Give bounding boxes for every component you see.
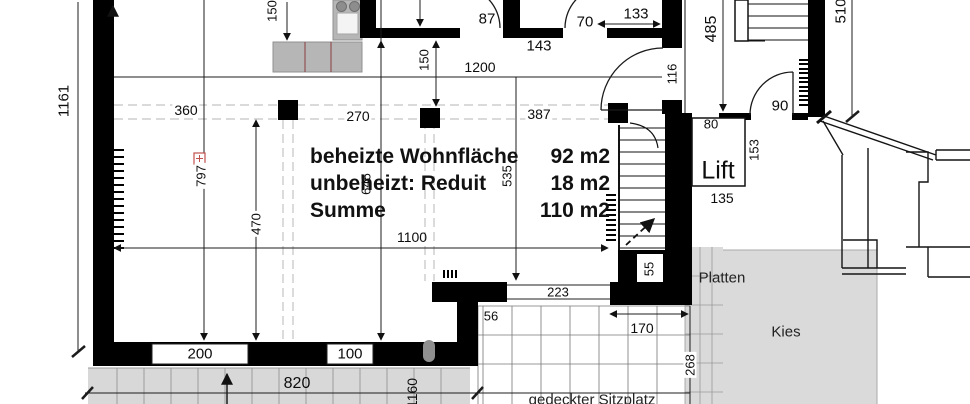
dim-bay-270: 270 <box>344 109 371 123</box>
dim-stair-55: 55 <box>643 262 656 276</box>
summary-row: beheizte Wohnfläche 92 m2 <box>310 143 610 170</box>
dim-corridor-485: 485 <box>704 16 720 43</box>
dim-door-90: 90 <box>772 99 789 114</box>
dim-kitchen-150: 150 <box>266 0 279 22</box>
dim-door-87: 87 <box>479 12 496 27</box>
dim-opening-116: 116 <box>666 62 679 87</box>
dim-terrace-820: 820 <box>284 376 311 392</box>
dim-lift-135: 135 <box>710 191 733 205</box>
column <box>278 100 298 120</box>
floor-plan: 1161 150 150 1200 87 143 70 133 485 510 … <box>0 0 970 404</box>
dim-offset-56: 56 <box>484 310 498 323</box>
dim-right-510: 510 <box>834 0 849 24</box>
dim-terrace-1160: 1160 <box>405 378 419 404</box>
summary-value: 92 m2 <box>550 143 610 170</box>
area-label-kies: Kies <box>771 324 800 341</box>
terrace-column <box>423 340 435 362</box>
dim-total-height: 1161 <box>57 85 72 117</box>
burner-icon <box>337 2 347 12</box>
kitchen-counter <box>273 42 362 72</box>
dim-lift-153: 153 <box>748 139 761 161</box>
dim-line-797: 797 <box>195 163 208 189</box>
dim-window-223: 223 <box>547 286 569 299</box>
burner-icon <box>350 2 360 12</box>
staircase <box>619 123 665 250</box>
sitzplatz-grid <box>478 306 690 404</box>
summary-value: 110 m2 <box>540 197 610 224</box>
dim-top-133: 133 <box>623 7 648 22</box>
dim-grid-150: 150 <box>418 49 431 71</box>
room-label-lift: Lift <box>701 157 734 186</box>
dim-wall-143: 143 <box>526 39 551 54</box>
dim-terrace-268: 268 <box>684 352 697 378</box>
summary-value: 18 m2 <box>550 170 610 197</box>
dim-room-470: 470 <box>250 211 263 237</box>
area-summary: beheizte Wohnfläche 92 m2 unbeheizt: Red… <box>310 143 610 224</box>
dim-door-70: 70 <box>577 15 594 30</box>
dim-window-100: 100 <box>337 347 362 362</box>
kitchen-block <box>273 0 362 72</box>
oven <box>337 13 358 34</box>
summary-label: beheizte Wohnfläche <box>310 143 518 170</box>
area-label-sitzplatz: gedeckter Sitzplatz <box>529 392 656 404</box>
summary-row: unbeheizt: Reduit 18 m2 <box>310 170 610 197</box>
summary-label: unbeheizt: Reduit <box>310 170 486 197</box>
dim-bay-360: 360 <box>172 103 199 117</box>
dim-door-80: 80 <box>704 118 718 131</box>
column <box>420 108 440 128</box>
dim-top-1200: 1200 <box>464 60 495 74</box>
dim-room-1100: 1100 <box>397 230 427 244</box>
summary-row: Summe 110 m2 <box>310 197 610 224</box>
area-label-platten: Platten <box>699 270 746 287</box>
dim-window-200: 200 <box>187 347 212 362</box>
summary-label: Summe <box>310 197 386 224</box>
dim-terrace-170: 170 <box>630 321 653 335</box>
dim-bay-387: 387 <box>525 107 552 121</box>
terrace-areas <box>88 247 877 404</box>
column <box>608 103 628 123</box>
